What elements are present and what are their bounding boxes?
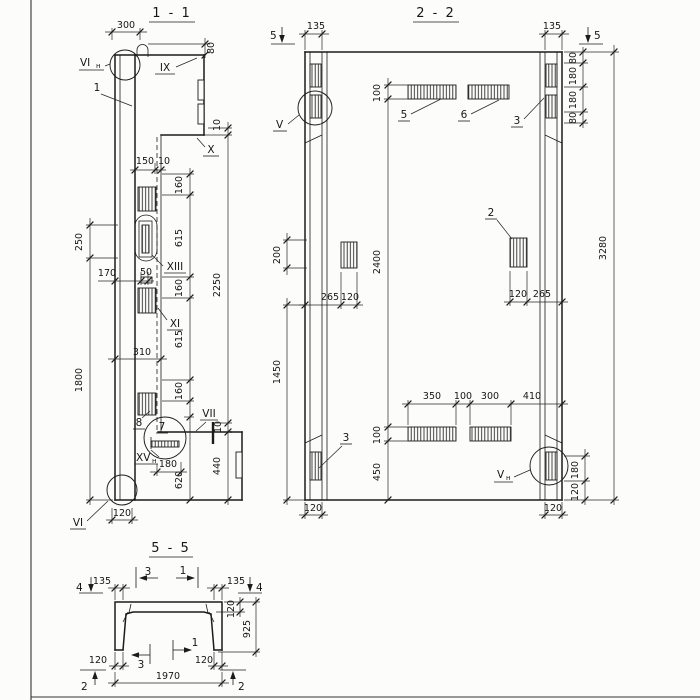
dim-180-br: 180: [570, 461, 581, 479]
cut-mark-2-left: 2: [80, 670, 106, 693]
dim-170: 170: [98, 268, 116, 279]
dim-440: 440: [212, 457, 223, 475]
label-item-7: 7: [159, 421, 166, 433]
label-item-3-bottom: 3: [343, 432, 350, 444]
dim-135-br: 135: [227, 576, 245, 587]
dim-80: 80: [206, 42, 217, 54]
dim-100-h: 100: [454, 391, 472, 402]
dim-10-mid: 10: [158, 156, 170, 167]
dim-160-1: 160: [174, 176, 185, 194]
dim-120-slab: 120: [226, 600, 237, 618]
label-item-6: 6: [461, 109, 468, 121]
dim-350: 350: [423, 391, 441, 402]
dim-300: 300: [117, 20, 135, 31]
label-item-5: 5: [401, 109, 408, 121]
label-item-3-top: 3: [514, 115, 521, 127]
dim-450: 450: [372, 463, 383, 481]
dim-180-1: 180: [568, 67, 579, 85]
dim-120-col-left: 120: [304, 503, 322, 514]
dim-80-2: 80: [568, 112, 579, 124]
section-5-5: 5 - 5 4 4 3: [76, 541, 263, 693]
mark-ix: IX: [160, 62, 170, 74]
dim-10-vii: 10: [213, 421, 224, 433]
dim-410: 410: [523, 391, 541, 402]
dim-10-top: 10: [212, 119, 223, 131]
dim-150: 150: [136, 156, 154, 167]
dim-180-2: 180: [568, 91, 579, 109]
section-1-1-title: 1 - 1: [152, 6, 192, 21]
dim-200: 200: [272, 246, 283, 264]
mark-v-n-sub: н: [506, 474, 511, 482]
cut-5-left-label: 5: [270, 30, 277, 42]
cut-2-right-label: 2: [238, 681, 245, 693]
dim-615-2: 615: [174, 330, 185, 348]
section-2-2-marks: V 5 6 3 2 3 V н: [273, 98, 544, 482]
dim-1970: 1970: [156, 671, 180, 682]
label-item-2: 2: [488, 207, 495, 219]
mark-v-n: V: [497, 469, 505, 481]
cut-5-right-label: 5: [594, 30, 601, 42]
dim-120-bottom-left: 120: [89, 655, 107, 666]
dim-160-3: 160: [174, 382, 185, 400]
cut-4-right-label: 4: [256, 582, 263, 594]
mark-vi-top: VI: [80, 57, 90, 69]
cut-3-top-label: 3: [145, 566, 152, 578]
section-1-1-dimensions: 300 80 150 10 160 615: [74, 20, 232, 524]
dim-135-bl: 135: [93, 576, 111, 587]
dim-2250: 2250: [212, 273, 223, 297]
cut-4-left-label: 4: [76, 582, 83, 594]
label-item-1: 1: [94, 82, 101, 94]
dim-265-left: 265: [321, 292, 339, 303]
dim-120-s1: 120: [113, 508, 131, 519]
drawing-sheet: 1 - 1: [0, 0, 700, 700]
label-item-8: 8: [136, 417, 143, 429]
dim-120-br: 120: [570, 483, 581, 501]
cut-mark-5-left: 5: [270, 27, 295, 44]
dim-100-top: 100: [372, 84, 383, 102]
dim-180: 180: [159, 459, 177, 470]
dim-50: 50: [140, 267, 152, 278]
dim-265-right: 265: [533, 289, 551, 300]
dim-615-1: 615: [174, 229, 185, 247]
dim-250: 250: [74, 233, 85, 251]
dim-120-right: 120: [509, 289, 527, 300]
dim-120-left: 120: [341, 292, 359, 303]
dim-1800: 1800: [74, 368, 85, 392]
dim-80-1: 80: [568, 52, 579, 64]
dim-135-right: 135: [543, 21, 561, 32]
dim-3280: 3280: [598, 236, 609, 260]
cut-2-left-label: 2: [81, 681, 88, 693]
dim-310: 310: [133, 347, 151, 358]
dim-925: 925: [242, 620, 253, 638]
dim-120-bottom-right: 120: [195, 655, 213, 666]
drawing-canvas: 1 - 1: [0, 0, 700, 700]
mark-v: V: [276, 119, 284, 131]
cut-mark-1-top: 1: [176, 565, 198, 588]
dim-1450: 1450: [272, 360, 283, 384]
mark-vi-top-sub: н: [96, 62, 101, 70]
section-2-2: 2 - 2: [270, 6, 619, 519]
dim-160-2: 160: [174, 279, 185, 297]
cut-3-bottom-label: 3: [138, 659, 145, 671]
mark-xv: XV: [136, 452, 151, 464]
mark-x: X: [207, 144, 214, 156]
mark-xi: XI: [170, 318, 180, 330]
mark-xiii: XIII: [167, 261, 183, 273]
section-1-1: 1 - 1: [70, 6, 242, 529]
cut-mark-3-top: 3: [136, 566, 158, 588]
dim-300-h: 300: [481, 391, 499, 402]
dim-135-left: 135: [307, 21, 325, 32]
cut-mark-3-bottom: 3: [131, 644, 150, 671]
section-5-5-title: 5 - 5: [151, 541, 191, 556]
mark-vi-bottom: VI: [73, 517, 83, 529]
dim-2400: 2400: [372, 250, 383, 274]
section-5-5-outline: [115, 602, 222, 650]
sheet-frame: [31, 0, 700, 700]
cut-1-bottom-label: 1: [192, 637, 199, 649]
cut-mark-5-right: 5: [579, 27, 603, 44]
section-2-2-title: 2 - 2: [416, 6, 456, 21]
mark-vii: VII: [202, 408, 215, 420]
dim-100-bot: 100: [372, 426, 383, 444]
cut-1-top-label: 1: [180, 565, 187, 577]
dim-120-col-right: 120: [544, 503, 562, 514]
